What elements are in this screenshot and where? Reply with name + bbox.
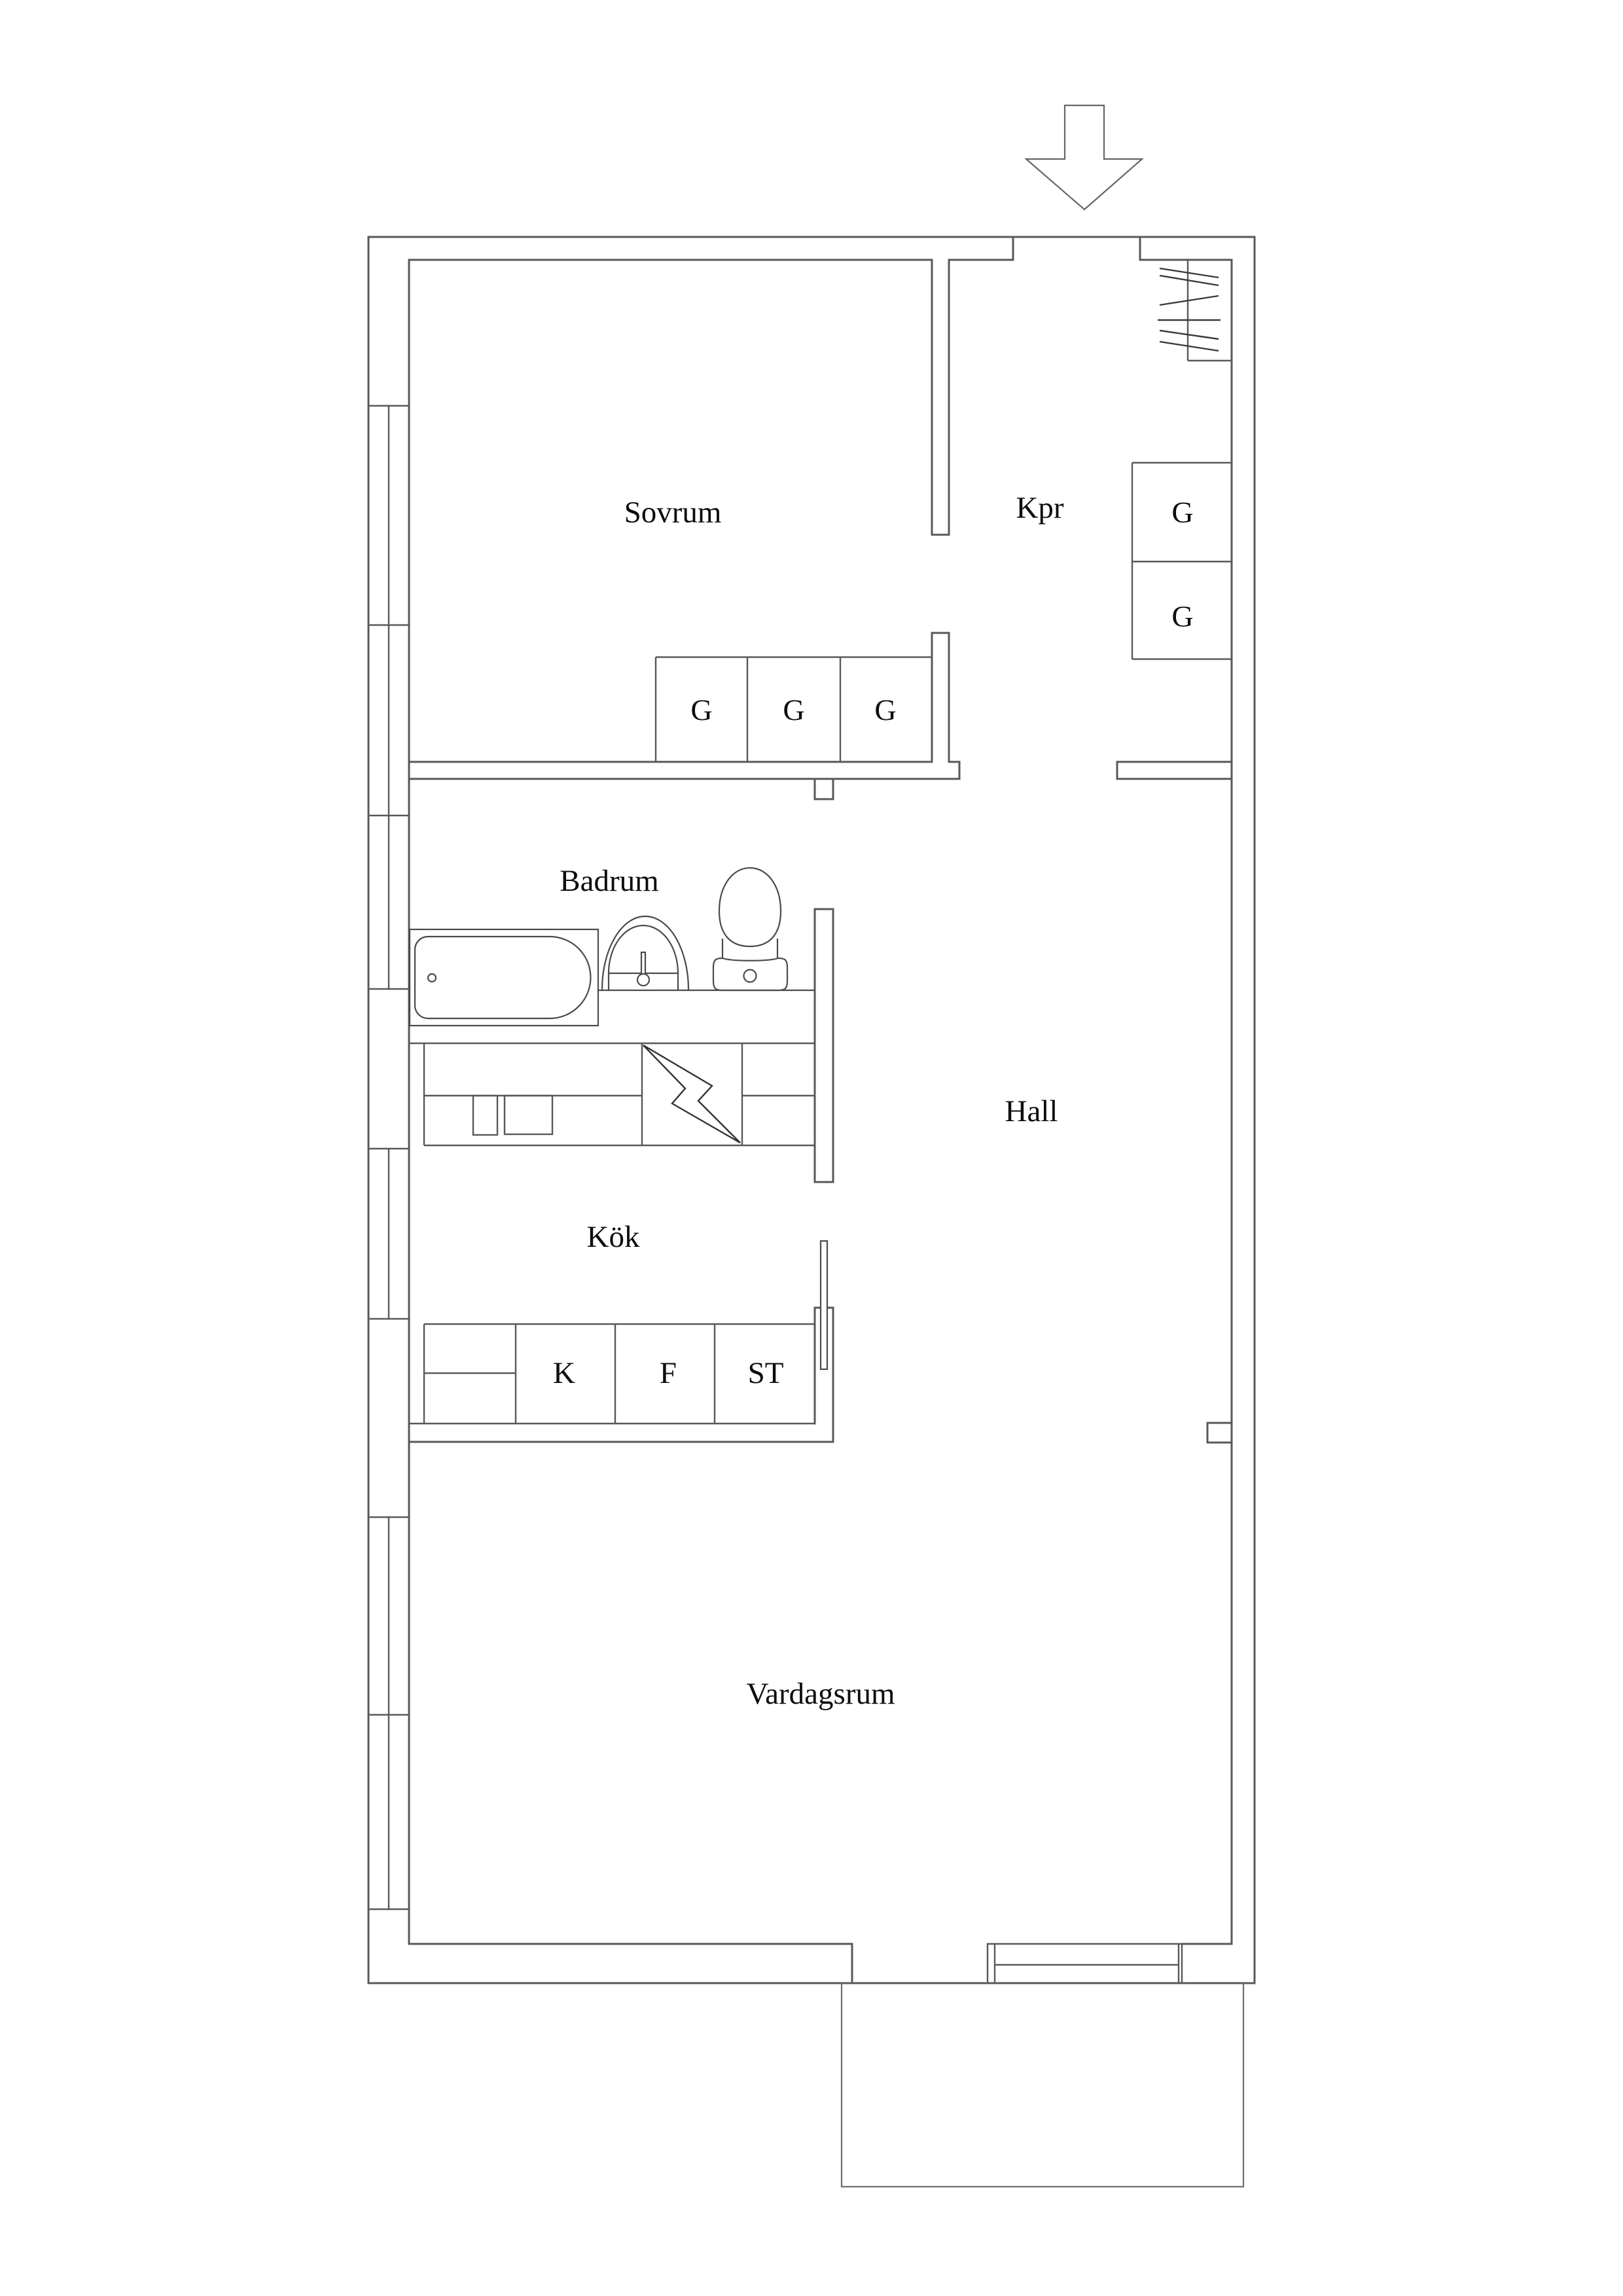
svg-text:G: G (1171, 600, 1193, 633)
svg-text:G: G (874, 693, 896, 726)
svg-text:K: K (553, 1356, 575, 1390)
svg-text:Vardagsrum: Vardagsrum (746, 1677, 895, 1711)
svg-text:Kök: Kök (587, 1220, 640, 1254)
svg-text:G: G (690, 693, 712, 726)
svg-text:Sovrum: Sovrum (624, 495, 722, 529)
svg-text:Hall: Hall (1005, 1094, 1058, 1128)
svg-text:F: F (660, 1356, 677, 1390)
svg-text:Kpr: Kpr (1016, 491, 1063, 525)
svg-text:G: G (783, 693, 804, 726)
svg-text:G: G (1171, 495, 1193, 529)
svg-text:ST: ST (748, 1356, 784, 1390)
svg-text:Badrum: Badrum (560, 864, 658, 898)
